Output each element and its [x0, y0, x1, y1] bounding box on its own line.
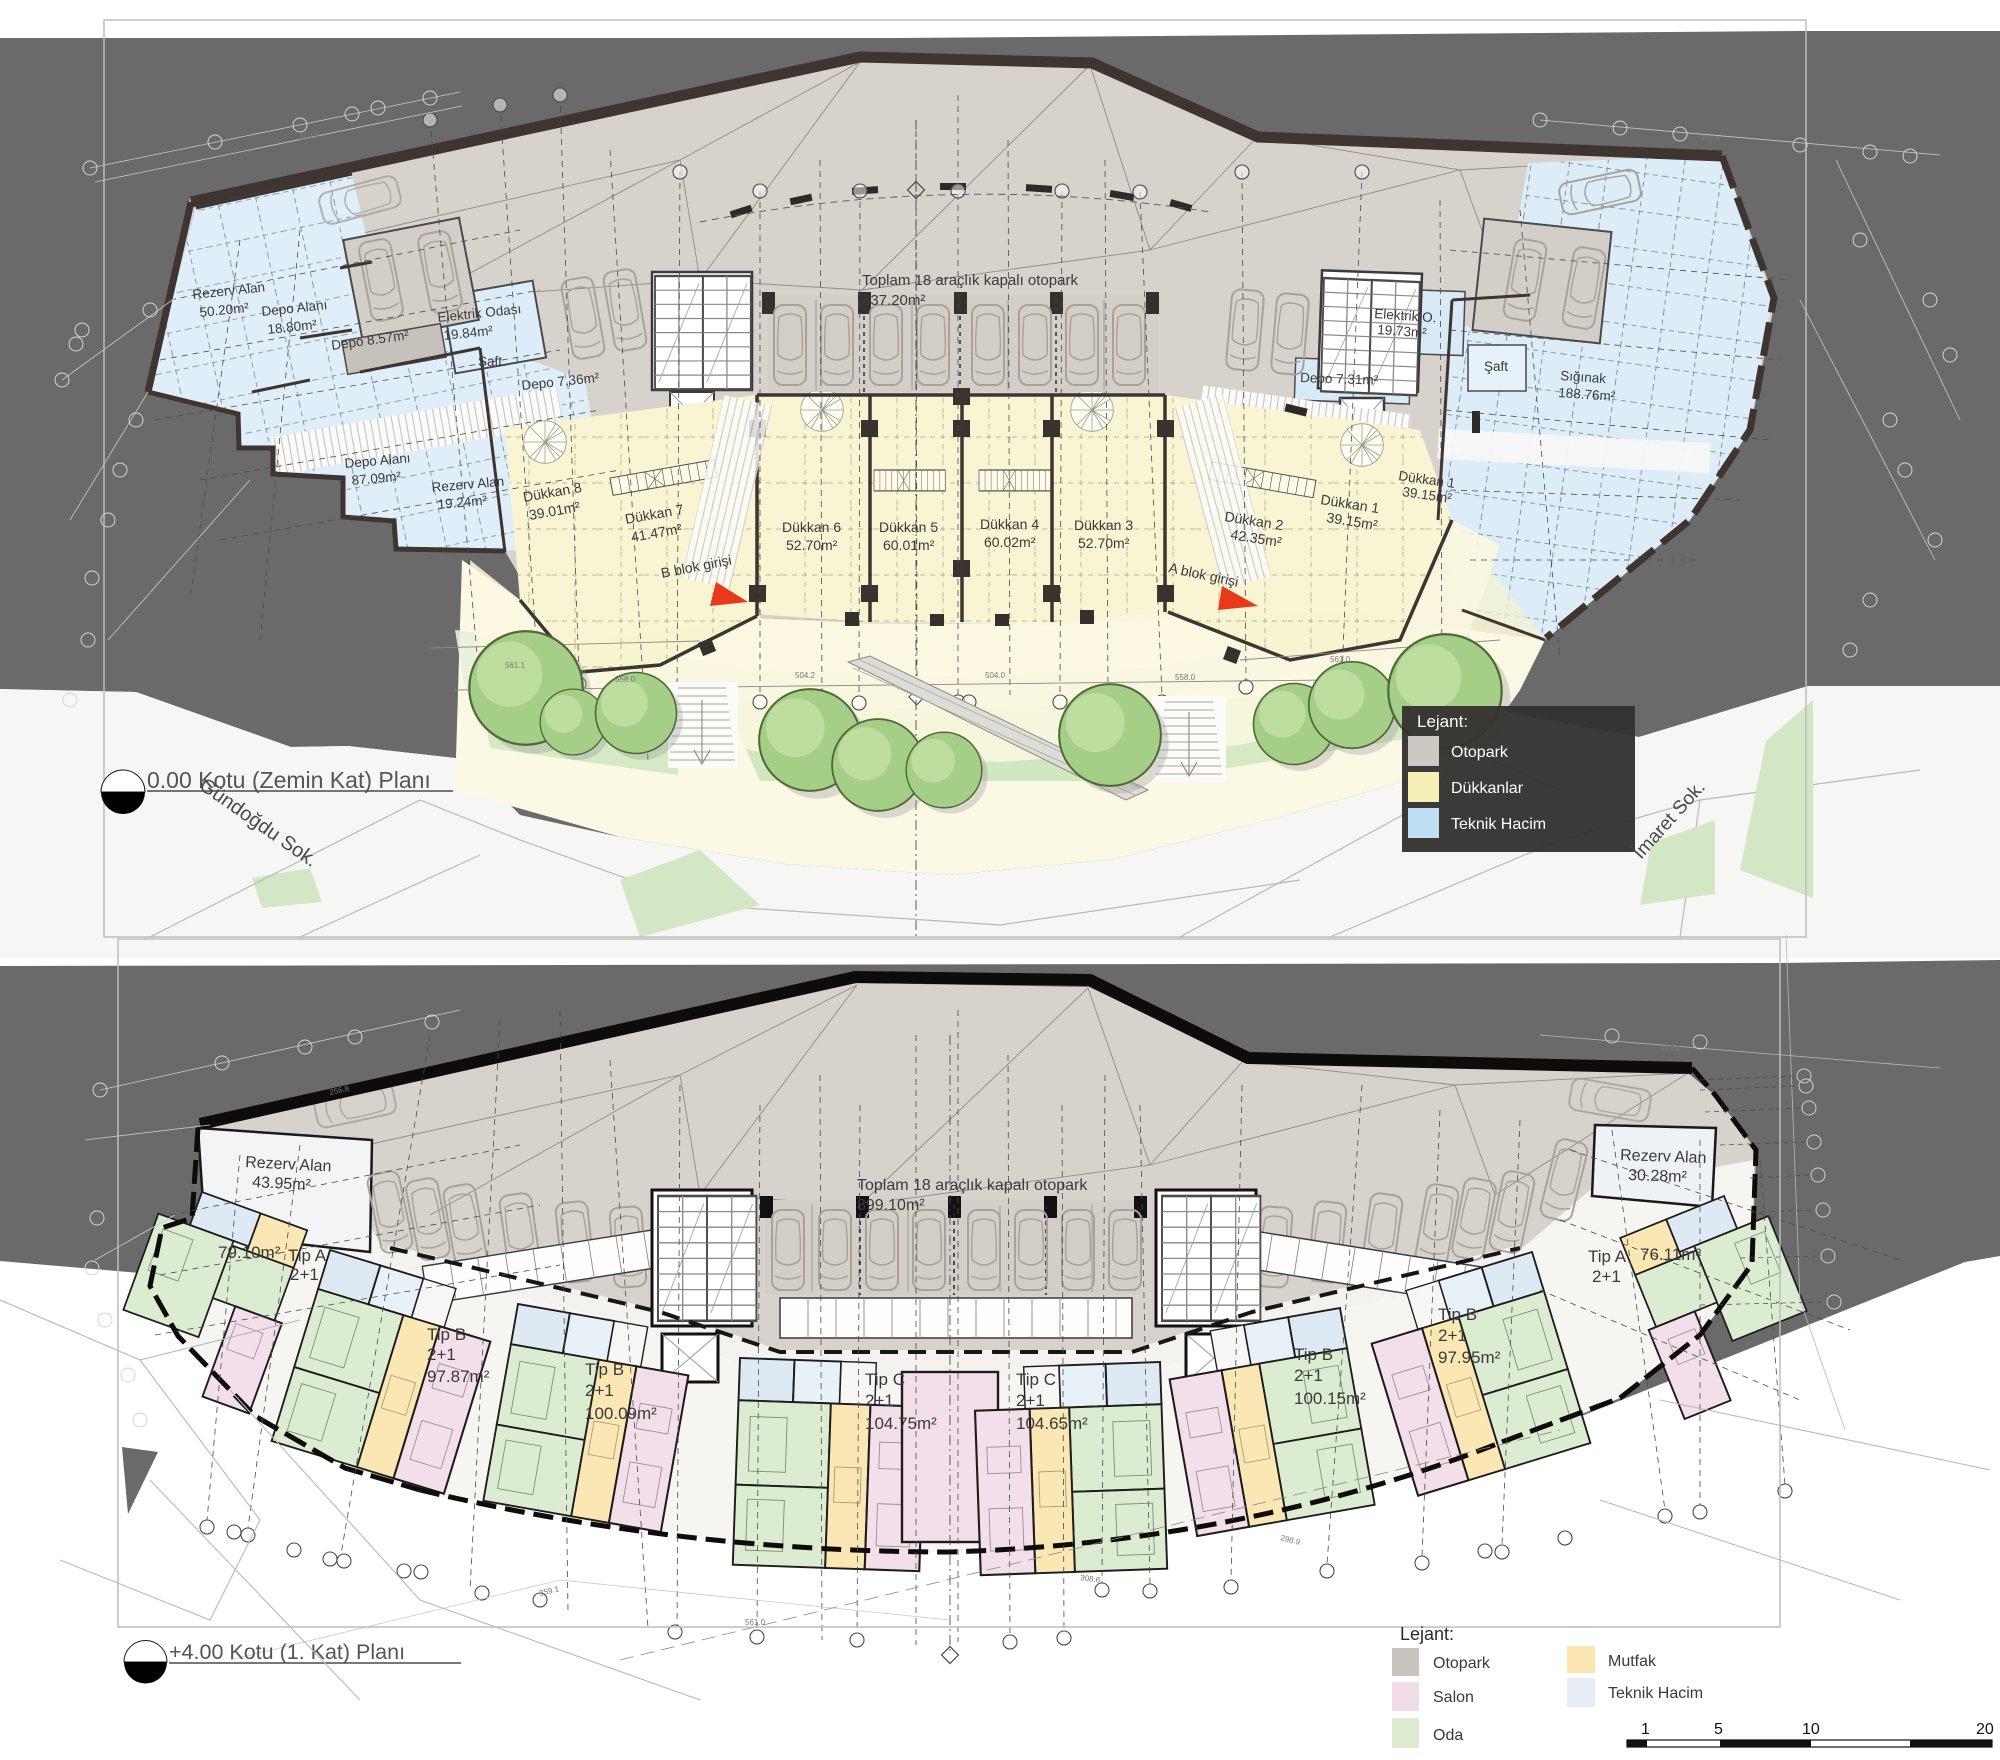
svg-text:561.1: 561.1 — [505, 661, 526, 670]
svg-text:79.10m²: 79.10m² — [218, 1243, 281, 1262]
svg-text:76.11m²: 76.11m² — [1640, 1245, 1701, 1264]
svg-text:30.28m²: 30.28m² — [1628, 1167, 1688, 1186]
svg-text:Dükkan 3: Dükkan 3 — [1074, 517, 1133, 533]
svg-text:Tip B: Tip B — [585, 1360, 624, 1379]
svg-text:Tip C: Tip C — [865, 1370, 905, 1389]
svg-text:Şaft: Şaft — [478, 354, 502, 369]
svg-text:2+1: 2+1 — [1592, 1267, 1621, 1286]
svg-text:Teknik Hacim: Teknik Hacim — [1451, 816, 1546, 833]
svg-text:Dükkanlar: Dükkanlar — [1451, 780, 1524, 797]
svg-text:2+1: 2+1 — [1294, 1366, 1323, 1385]
svg-text:Oda: Oda — [1433, 1727, 1463, 1744]
svg-text:1: 1 — [1641, 1721, 1650, 1738]
svg-text:2+1: 2+1 — [290, 1265, 319, 1284]
svg-text:10: 10 — [1802, 1721, 1820, 1738]
svg-text:Toplam 18 araçlık kapalı otopa: Toplam 18 araçlık kapalı otopark — [857, 1177, 1088, 1194]
svg-text:558.0: 558.0 — [615, 675, 636, 684]
svg-text:Dükkan 4: Dükkan 4 — [980, 516, 1039, 532]
svg-text:Lejant:: Lejant: — [1400, 1624, 1454, 1644]
svg-text:Tip A: Tip A — [1588, 1247, 1627, 1266]
svg-text:Salon: Salon — [1433, 1689, 1474, 1706]
svg-text:2+1: 2+1 — [427, 1345, 456, 1364]
svg-text:97.87m²: 97.87m² — [427, 1367, 490, 1386]
svg-text:Teknik Hacim: Teknik Hacim — [1608, 1685, 1703, 1702]
svg-text:100.15m²: 100.15m² — [1294, 1389, 1366, 1408]
svg-text:Tip C: Tip C — [1016, 1370, 1056, 1389]
svg-text:Dükkan 6: Dükkan 6 — [782, 519, 841, 535]
svg-text:97.95m²: 97.95m² — [1438, 1348, 1501, 1367]
svg-text:Rezerv Alan: Rezerv Alan — [1620, 1147, 1707, 1167]
svg-text:2+1: 2+1 — [1016, 1391, 1045, 1410]
svg-text:504.0: 504.0 — [985, 671, 1006, 680]
svg-text:104.75m²: 104.75m² — [865, 1414, 937, 1433]
svg-text:52.70m²: 52.70m² — [786, 537, 838, 553]
svg-text:60.01m²: 60.01m² — [883, 537, 935, 553]
svg-text:52.70m²: 52.70m² — [1078, 535, 1130, 551]
svg-text:302.8: 302.8 — [1700, 133, 1721, 144]
svg-text:837.20m²: 837.20m² — [862, 292, 925, 309]
svg-text:561.0: 561.0 — [745, 1618, 766, 1627]
svg-text:2+1: 2+1 — [1438, 1326, 1467, 1345]
svg-text:Tip A: Tip A — [288, 1246, 327, 1265]
svg-text:Otopark: Otopark — [1433, 1655, 1491, 1672]
svg-text:20: 20 — [1976, 1721, 1994, 1738]
svg-text:493.8: 493.8 — [1660, 1043, 1681, 1053]
svg-text:899.10m²: 899.10m² — [857, 1197, 925, 1214]
svg-text:504.2: 504.2 — [795, 671, 816, 680]
svg-text:Mutfak: Mutfak — [1608, 1653, 1657, 1670]
svg-text:561.0: 561.0 — [1330, 655, 1351, 664]
svg-text:Dükkan 5: Dükkan 5 — [879, 519, 938, 535]
svg-text:Otopark: Otopark — [1451, 744, 1509, 761]
svg-text:Sığınak: Sığınak — [1560, 368, 1607, 386]
svg-text:104.65m²: 104.65m² — [1016, 1414, 1088, 1433]
svg-text:Toplam 18 araçlık kapalı otopa: Toplam 18 araçlık kapalı otopark — [862, 272, 1078, 289]
svg-text:0.00 Kotu (Zemin Kat) Planı: 0.00 Kotu (Zemin Kat) Planı — [147, 767, 431, 793]
svg-text:Depo 7.31m²: Depo 7.31m² — [1300, 370, 1379, 388]
svg-text:+4.00 Kotu (1. Kat) Planı: +4.00 Kotu (1. Kat) Planı — [169, 1640, 405, 1664]
svg-text:Tip B: Tip B — [427, 1325, 466, 1344]
svg-text:5: 5 — [1714, 1721, 1723, 1738]
svg-text:2+1: 2+1 — [865, 1391, 894, 1410]
svg-text:100.09m²: 100.09m² — [585, 1404, 657, 1423]
svg-text:2+1: 2+1 — [585, 1381, 614, 1400]
svg-text:Şaft: Şaft — [1484, 359, 1508, 374]
svg-text:60.02m²: 60.02m² — [984, 534, 1036, 550]
svg-text:Tip B: Tip B — [1438, 1305, 1477, 1324]
svg-text:Tip B: Tip B — [1294, 1345, 1333, 1364]
svg-text:558.0: 558.0 — [1175, 673, 1196, 682]
svg-text:43.95m²: 43.95m² — [252, 1174, 312, 1194]
svg-text:Lejant:: Lejant: — [1417, 712, 1468, 731]
